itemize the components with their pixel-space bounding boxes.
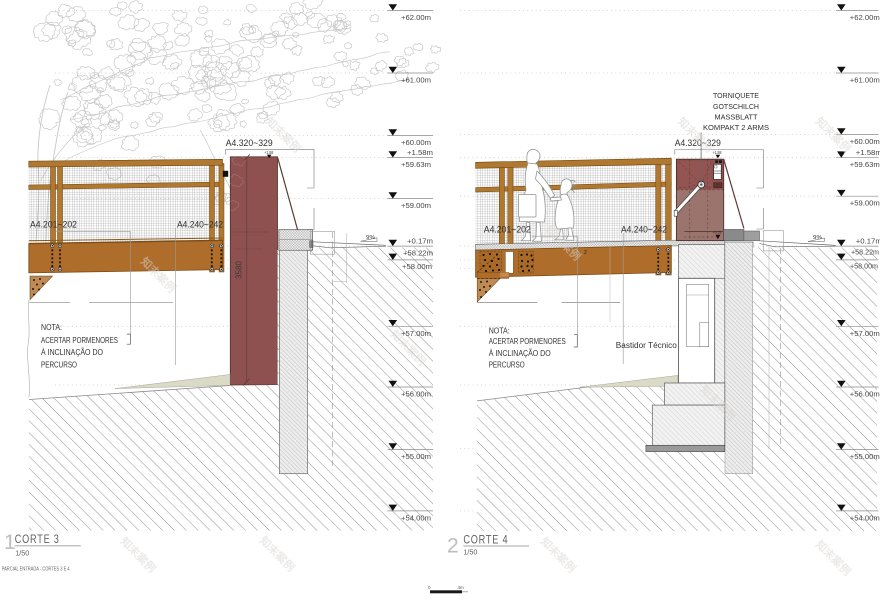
svg-text:+1.58m: +1.58m <box>856 150 880 157</box>
svg-text:ACERTAR PORMENORES: ACERTAR PORMENORES <box>41 336 118 345</box>
svg-text:À INCLINAÇÃO DO: À INCLINAÇÃO DO <box>41 348 103 357</box>
svg-text:1/50: 1/50 <box>15 549 29 558</box>
svg-text:4m: 4m <box>458 585 465 590</box>
svg-text:+55.00m: +55.00m <box>850 454 880 461</box>
svg-text:A4.201~202: A4.201~202 <box>484 225 531 235</box>
svg-text:ACERTAR PORMENORES: ACERTAR PORMENORES <box>489 337 566 346</box>
svg-text:+58.22m: +58.22m <box>403 251 433 258</box>
svg-text:+58.00m: +58.00m <box>402 264 432 271</box>
svg-text:NOTA:: NOTA: <box>489 327 510 336</box>
svg-text:+57.00m: +57.00m <box>850 331 880 338</box>
svg-text:+55.00m: +55.00m <box>401 454 431 461</box>
svg-text:+59.00m: +59.00m <box>401 203 431 210</box>
svg-text:+59.63m: +59.63m <box>401 162 431 169</box>
svg-text:+59.63m: +59.63m <box>850 162 880 169</box>
svg-text:A4.240~242: A4.240~242 <box>177 219 223 229</box>
svg-text:2: 2 <box>447 535 459 558</box>
svg-text:+60.00m: +60.00m <box>850 139 880 146</box>
svg-text:+61.00m: +61.00m <box>850 78 880 85</box>
svg-text:TORNIQUETE: TORNIQUETE <box>713 93 759 100</box>
svg-text:+0.28: +0.28 <box>713 229 723 234</box>
svg-text:PARCIAL ENTRADA - CORTES 3 E 4: PARCIAL ENTRADA - CORTES 3 E 4 <box>2 567 70 573</box>
svg-text:3580: 3580 <box>235 260 244 279</box>
svg-text:9%: 9% <box>366 235 375 241</box>
svg-text:MASSBLATT: MASSBLATT <box>715 115 759 122</box>
svg-text:A4.240~242: A4.240~242 <box>621 225 667 235</box>
svg-text:1/50: 1/50 <box>463 547 477 556</box>
svg-text:2: 2 <box>584 250 587 256</box>
svg-text:+62.00m: +62.00m <box>850 15 880 22</box>
svg-text:+56.00m: +56.00m <box>401 392 431 399</box>
svg-text:+1.58: +1.58 <box>713 150 723 155</box>
svg-text:CORTE 4: CORTE 4 <box>463 535 508 547</box>
svg-text:CORTE 3: CORTE 3 <box>15 534 60 546</box>
svg-text:+0.17m: +0.17m <box>407 239 433 246</box>
svg-text:Bastidor Técnico: Bastidor Técnico <box>616 341 678 350</box>
svg-text:A4.201~202: A4.201~202 <box>30 219 77 229</box>
svg-text:NOTA:: NOTA: <box>41 323 62 332</box>
svg-text:PERCURSO: PERCURSO <box>41 360 77 369</box>
svg-text:+58.00m: +58.00m <box>850 263 878 270</box>
svg-text:+62.00m: +62.00m <box>401 15 431 22</box>
svg-text:+0.17m: +0.17m <box>856 239 880 246</box>
svg-text:A4.320~329: A4.320~329 <box>226 138 273 149</box>
svg-text:GOTSCHILCH: GOTSCHILCH <box>713 104 759 111</box>
svg-text:+59.00m: +59.00m <box>850 201 880 208</box>
svg-text:+54.00m: +54.00m <box>850 515 880 522</box>
svg-text:+58.22m: +58.22m <box>851 250 879 257</box>
svg-text:+56.00m: +56.00m <box>850 392 880 399</box>
svg-text:+1.58m: +1.58m <box>407 150 433 157</box>
svg-text:À INCLINAÇÃO DO: À INCLINAÇÃO DO <box>489 349 551 358</box>
svg-text:+60.00m: +60.00m <box>401 140 431 147</box>
svg-text:PERCURSO: PERCURSO <box>489 361 525 370</box>
svg-text:KOMPAKT 2 ARMS: KOMPAKT 2 ARMS <box>703 125 769 132</box>
svg-text:+1.58: +1.58 <box>264 150 274 155</box>
svg-text:+61.00m: +61.00m <box>401 78 431 85</box>
svg-text:+54.00m: +54.00m <box>401 515 431 522</box>
